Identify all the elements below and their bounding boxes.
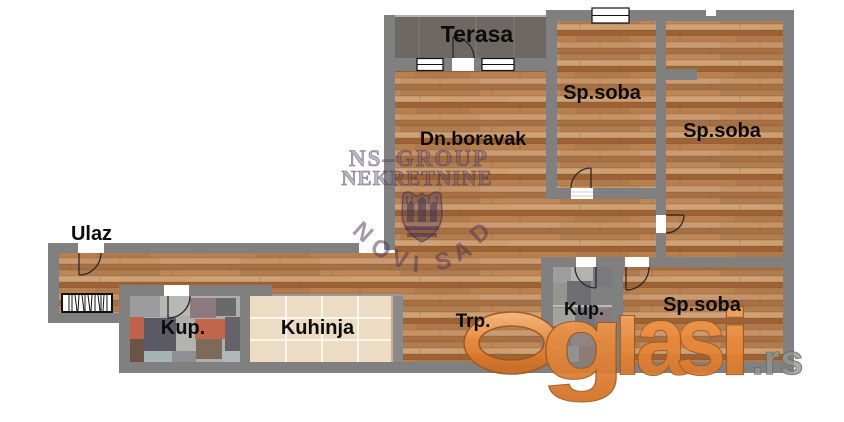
svg-text:Dn.boravak: Dn.boravak <box>420 128 526 150</box>
svg-text:Terasa: Terasa <box>441 21 514 47</box>
svg-text:Kup.: Kup. <box>564 299 604 319</box>
svg-text:Sp.soba: Sp.soba <box>663 294 742 316</box>
svg-text:Ulaz: Ulaz <box>71 223 112 245</box>
svg-text:I: I <box>412 251 420 278</box>
svg-text:Sp.soba: Sp.soba <box>563 82 642 104</box>
svg-text:NEKRETNINE: NEKRETNINE <box>341 166 492 190</box>
svg-text:.rs: .rs <box>752 337 804 383</box>
svg-text:Kuhinja: Kuhinja <box>281 317 355 339</box>
svg-text:Kup.: Kup. <box>161 317 205 339</box>
svg-text:Trp.: Trp. <box>456 311 491 332</box>
svg-text:Sp.soba: Sp.soba <box>683 120 762 142</box>
